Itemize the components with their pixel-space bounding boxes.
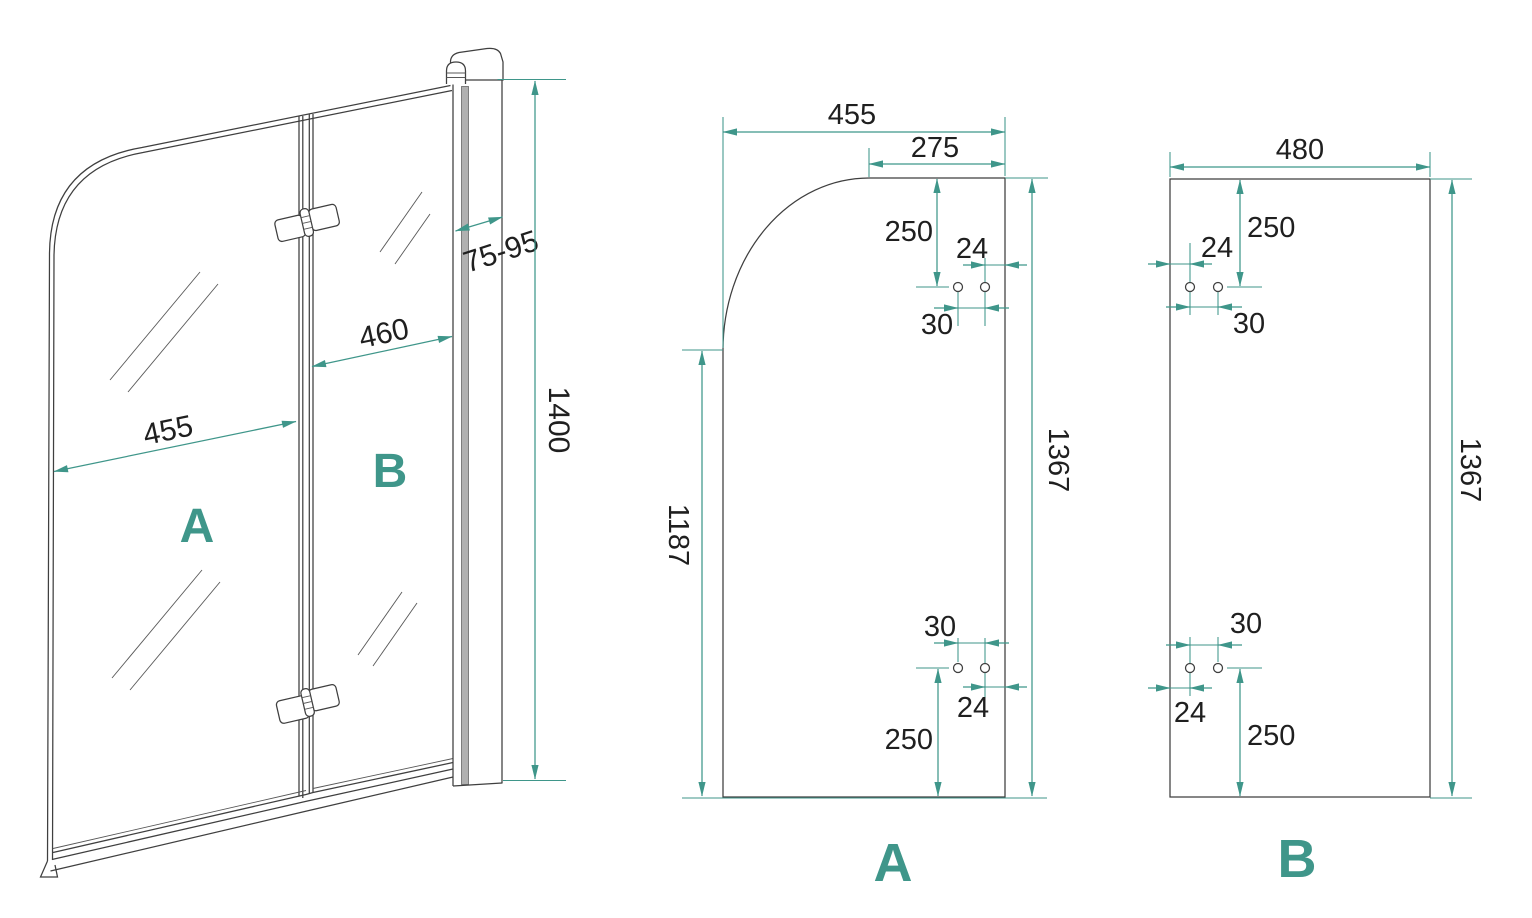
dim-panel-b-width: 480 <box>1276 134 1324 166</box>
dim-panel-a-top-hole-gap: 30 <box>921 309 953 341</box>
dim-panel-a-bottom-hole-edge: 24 <box>957 692 989 724</box>
bottom-hinge <box>274 682 341 724</box>
panel-b-detail: 480 250 24 30 1367 30 24 250 B <box>1148 134 1486 889</box>
dim-panel-a-top-hole-offset: 250 <box>885 216 933 248</box>
panel-a-detail: 455 275 250 24 30 1367 1187 30 24 250 A <box>662 99 1074 893</box>
wall-profile <box>447 48 504 786</box>
dim-panel-b-height-full: 1367 <box>1454 438 1486 503</box>
panel-b-holes <box>1186 283 1223 673</box>
dim-panel-b-bottom-hole-edge: 24 <box>1174 697 1206 729</box>
dim-panel-b-bottom-hole-offset: 250 <box>1247 720 1295 752</box>
panel-a-holes <box>954 283 990 673</box>
assembled-panel-a-label: A <box>180 500 215 553</box>
panel-b-outline <box>1170 179 1430 797</box>
rail-foot <box>41 861 58 877</box>
dim-panel-a-top-flat: 275 <box>911 132 959 164</box>
dim-panel-b-bottom-hole-gap: 30 <box>1230 608 1262 640</box>
dim-panel-a-height-straight: 1187 <box>662 504 694 566</box>
wall-profile-channel <box>462 87 469 785</box>
dim-panel-b-top-hole-offset: 250 <box>1247 212 1295 244</box>
top-hinge <box>273 202 341 244</box>
panel-b-label: B <box>1278 829 1317 889</box>
dim-panel-a-width: 455 <box>828 99 876 131</box>
dim-assembled-panel-a-width: 455 <box>140 409 196 451</box>
assembled-panel-b-label: B <box>373 445 408 498</box>
panel-a-extension-lines <box>682 117 1048 798</box>
bottom-rail <box>41 759 454 878</box>
dim-panel-b-top-hole-gap: 30 <box>1233 308 1265 340</box>
assembled-dimensions: 455 460 75-95 1400 <box>54 80 575 781</box>
technical-drawing-page: 455 460 75-95 1400 A B <box>0 0 1532 918</box>
assembled-view: 455 460 75-95 1400 A B <box>41 48 576 877</box>
dim-panel-a-bottom-hole-offset: 250 <box>885 724 933 756</box>
dim-panel-a-top-hole-edge: 24 <box>956 233 988 265</box>
dim-assembled-panel-b-width: 460 <box>356 312 412 355</box>
panel-a-label: A <box>874 833 913 893</box>
dim-assembled-total-height: 1400 <box>542 387 575 454</box>
technical-drawing-canvas: 455 460 75-95 1400 A B <box>0 0 1532 918</box>
dim-panel-a-bottom-hole-gap: 30 <box>924 611 956 643</box>
dim-wall-profile-adjust: 75-95 <box>459 224 542 279</box>
dim-panel-a-height-full: 1367 <box>1042 428 1074 493</box>
dim-panel-b-top-hole-edge: 24 <box>1201 232 1233 264</box>
